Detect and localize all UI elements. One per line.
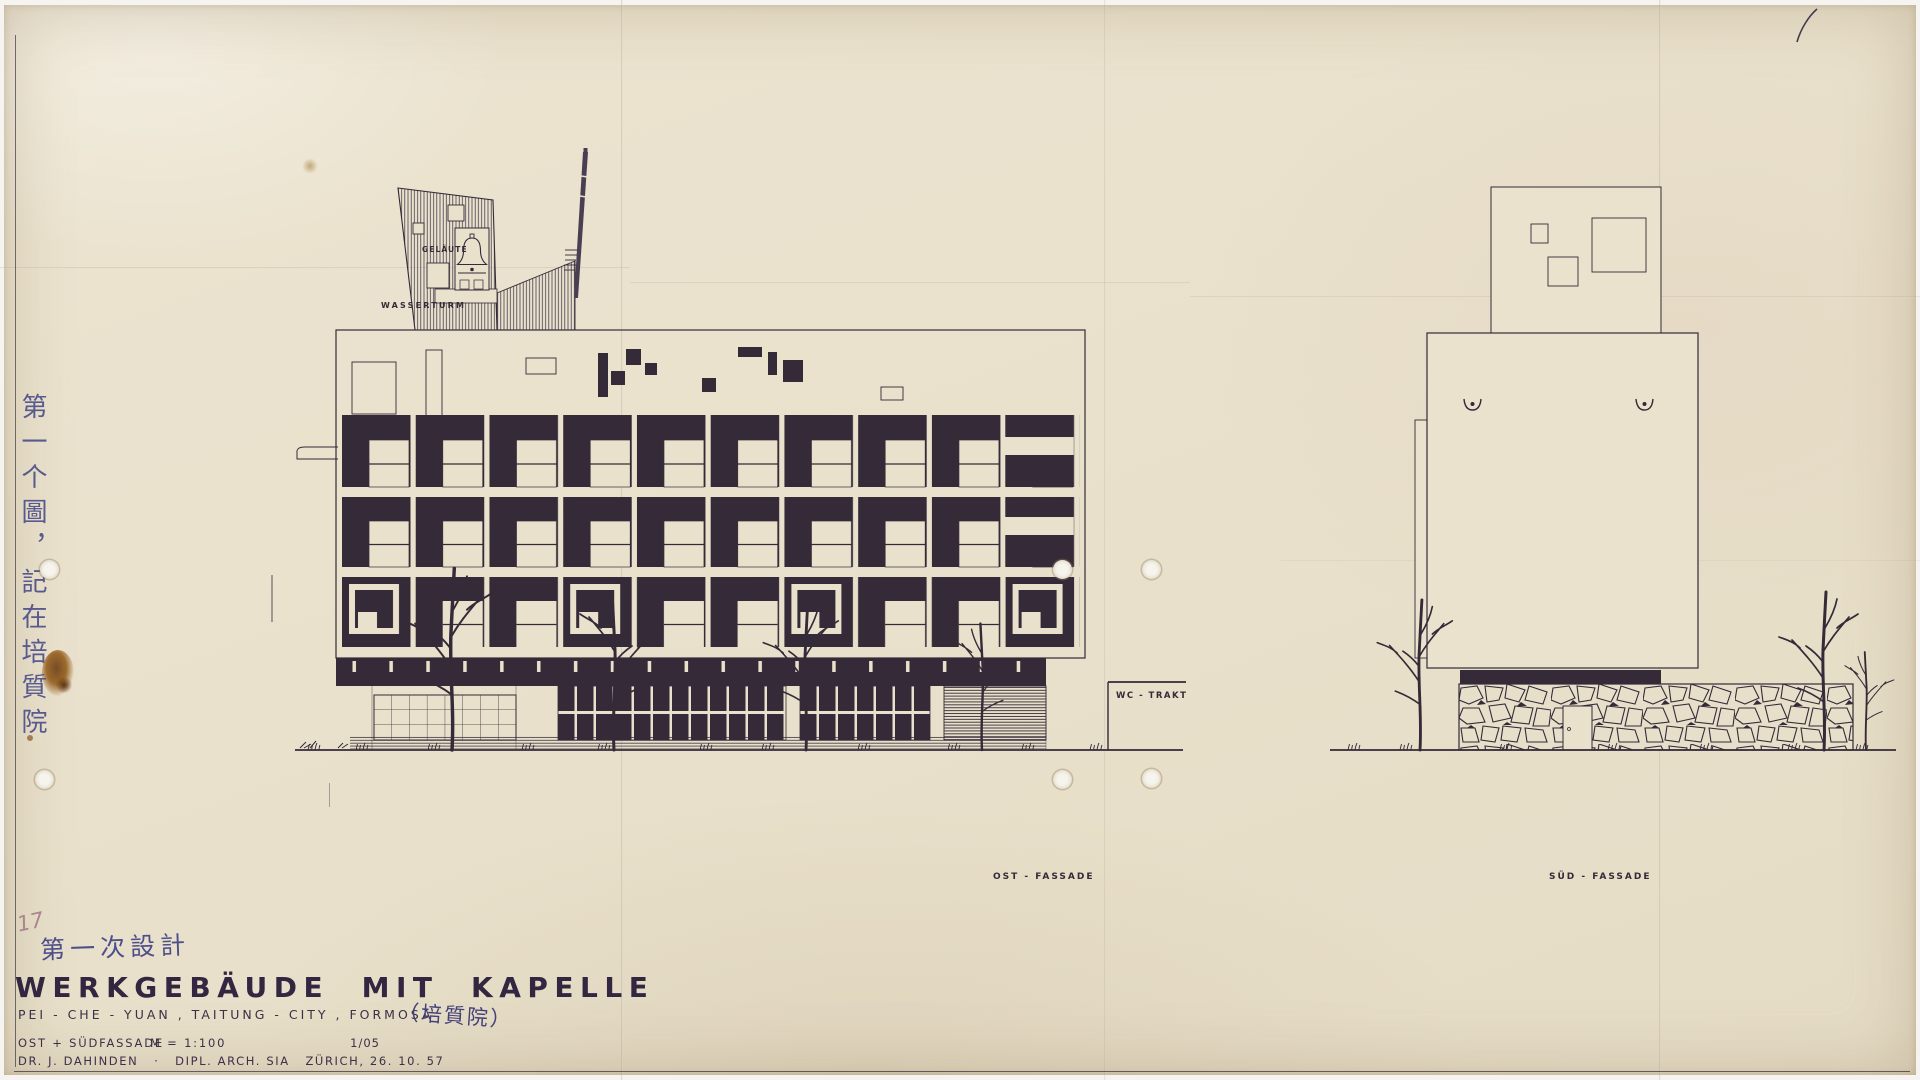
drawing-scale: M = 1:100 (150, 1036, 226, 1050)
author-row: DR. J. DAHINDEN · DIPL. ARCH. SIA ZÜRICH… (18, 1054, 444, 1068)
glazed-grid-wall (374, 695, 516, 740)
left-canopy (297, 447, 338, 459)
tower-wedge (497, 261, 575, 330)
project-title: WERKGEBÄUDE MIT KAPELLE (15, 971, 654, 1004)
water-tower-label: WASSERTURM (381, 301, 466, 310)
base-plinth (350, 736, 1046, 749)
punch-hole-left-top (40, 560, 59, 579)
author-credentials: · DIPL. ARCH. SIA ZÜRICH, 26. 10. 57 (154, 1054, 444, 1068)
dark-glazing-a (558, 686, 786, 740)
south-building-outline (1427, 333, 1698, 668)
sheet-number: 1/05 (350, 1036, 380, 1050)
corner-pen-mark (1797, 9, 1817, 42)
dark-glazing-b (800, 686, 930, 740)
east-facade-drawing: GELÄUTE WASSERTURM (272, 148, 1187, 882)
attic-roofscape (352, 347, 903, 416)
punch-hole-mid-bottom-2 (1142, 769, 1161, 788)
south-facade-label: SÜD - FASSADE (1549, 871, 1652, 882)
bell-tower: GELÄUTE WASSERTURM (381, 148, 588, 330)
punch-hole-mid-top-1 (1053, 560, 1072, 579)
south-facade-drawing: SÜD - FASSADE (1330, 187, 1896, 882)
elevation-drawing: GELÄUTE WASSERTURM (0, 0, 1920, 1080)
drawing-name: OST + SÜDFASSADE (18, 1036, 164, 1050)
design-phase-annotation: 第一次設計 (39, 925, 190, 966)
punch-hole-mid-top-2 (1142, 560, 1161, 579)
wc-annex: WC - TRAKT (1108, 682, 1187, 750)
stone-wall-door (1563, 706, 1592, 750)
louvered-wall (944, 686, 1046, 740)
roof-box (1491, 187, 1661, 333)
stone-wall (1459, 684, 1853, 750)
shrub-scribble (300, 741, 348, 748)
bell-opening (455, 228, 489, 290)
bell-label: GELÄUTE (422, 245, 468, 254)
shadow-band (1460, 670, 1661, 684)
east-facade-label: OST - FASSADE (993, 872, 1095, 882)
ground-floor (350, 686, 1046, 750)
fascia-band (336, 658, 1046, 686)
project-location: PEI - CHE - YUAN , TAITUNG - CITY , FORM… (18, 1007, 434, 1022)
author: DR. J. DAHINDEN (18, 1054, 138, 1068)
punch-hole-mid-bottom-1 (1053, 770, 1072, 789)
wc-wing-label: WC - TRAKT (1116, 691, 1187, 701)
punch-hole-left-bottom (35, 770, 54, 789)
drawing-meta-row: OST + SÜDFASSADE M = 1:100 1/05 (18, 1036, 380, 1050)
